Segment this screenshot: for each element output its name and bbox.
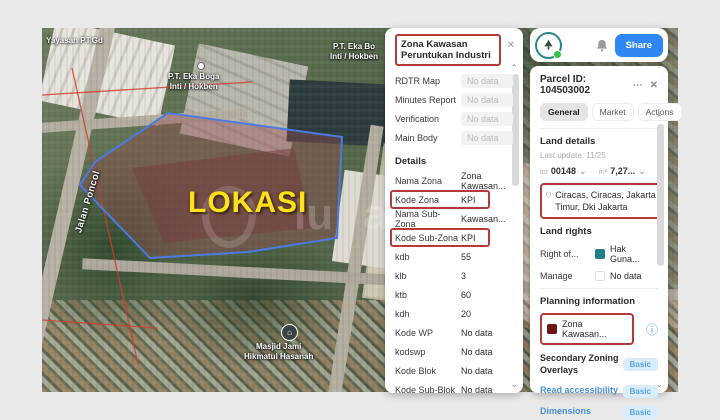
tab-general[interactable]: General [540, 103, 588, 121]
parcel-address: Ciracas, Ciracas, Jakarta Timur, Dki Jak… [555, 189, 658, 213]
info-icon[interactable]: ⓘ [646, 321, 658, 338]
online-status-dot [553, 50, 562, 59]
lokasi-annotation: LOKASI [188, 186, 307, 220]
map-label-hokben-2: P.T. Eka Bo Inti / Hokben [330, 42, 378, 62]
boundary-line [42, 320, 157, 328]
field-value: Kawasan... [461, 214, 506, 224]
field-value: No data [461, 93, 513, 107]
field-label: ktb [395, 290, 461, 300]
mosque-icon: ⌂ [287, 328, 292, 337]
parcel-panel-header: Parcel ID: 104503002 ⋯ ✕ [540, 74, 658, 96]
lot-dropdown[interactable]: lot 00148 ⌄ [540, 166, 587, 176]
zoning-value: Zona Kawasan... [562, 319, 627, 339]
field-label: kodswp [395, 347, 461, 357]
watermark-text: lu a [294, 190, 388, 240]
map-label-line: Inti / Hokben [170, 82, 218, 91]
close-icon[interactable]: ✕ [650, 80, 658, 91]
field-row: Main Body No data [395, 128, 501, 147]
overlay-row: Dimensions Basic [540, 406, 658, 419]
basic-badge[interactable]: Basic [623, 385, 658, 398]
planning-information-header: Planning information [540, 296, 658, 307]
tab-market[interactable]: Market [592, 103, 634, 121]
poi-marker[interactable] [197, 62, 205, 70]
field-row: RDTR Map No data [395, 71, 501, 90]
field-row: Verification No data [395, 109, 501, 128]
field-row-highlighted: Kode Zona KPI [395, 190, 501, 209]
field-row: Nama Zona Zona Kawasan... [395, 171, 501, 190]
field-value: 20 [461, 309, 471, 319]
field-row: Nama Sub-Zona Kawasan... [395, 209, 501, 228]
parcel-panel: Parcel ID: 104503002 ⋯ ✕ General Market … [530, 66, 668, 393]
read-accessibility-link[interactable]: Read accessibility [540, 385, 623, 397]
map-label-yayasan: Yayasan PT.Gd [46, 36, 103, 46]
field-value: KPI [461, 195, 476, 205]
overlay-row: Secondary Zoning Overlays Basic [540, 353, 658, 376]
chevron-down-icon[interactable]: ⌄ [510, 380, 518, 389]
field-value: 60 [461, 290, 471, 300]
zoning-highlight-box: Zona Kawasan... [540, 313, 634, 345]
field-label: Minutes Report [395, 95, 461, 105]
field-row: Kode Sub-Blok No data [395, 380, 501, 399]
field-row: Kode Blok No data [395, 361, 501, 380]
field-label: Nama Sub-Zona [395, 209, 461, 229]
chevron-down-icon[interactable]: ⌄ [655, 380, 663, 389]
lot-prefix: lot [540, 167, 548, 176]
field-label: RDTR Map [395, 76, 461, 86]
zoning-details-panel: Zona Kawasan Peruntukan Industri ✕ ⌃ ⌄ R… [385, 28, 523, 393]
field-row: Minutes Report No data [395, 90, 501, 109]
zoning-color-swatch [547, 324, 557, 334]
details-section-header: Details [395, 156, 501, 167]
divider [540, 288, 658, 289]
close-icon[interactable]: ✕ [507, 40, 515, 51]
overlay-row: Read accessibility Basic [540, 385, 658, 398]
field-value: No data [461, 112, 513, 126]
field-label: Kode Blok [395, 366, 461, 376]
chevron-up-icon[interactable]: ⌃ [655, 114, 663, 123]
divider [540, 128, 658, 129]
field-row: ktb 60 [395, 285, 501, 304]
share-button[interactable]: Share [615, 34, 663, 57]
map-label-line: P.T. Eka Boga [168, 72, 219, 81]
scrollbar-thumb[interactable] [657, 124, 664, 266]
map-label-line: Hikmatul Hasanah [244, 352, 313, 361]
field-row: kdb 55 [395, 247, 501, 266]
field-label: Kode WP [395, 328, 461, 338]
dimensions-link[interactable]: Dimensions [540, 406, 623, 418]
shield-icon [546, 189, 551, 200]
field-value: 55 [461, 252, 471, 262]
field-value: No data [461, 366, 493, 376]
field-label: kdh [395, 309, 461, 319]
field-value: No data [461, 328, 493, 338]
field-row: klb 3 [395, 266, 501, 285]
map-label-line: Inti / Hokben [330, 52, 378, 61]
address-highlight-box: Ciracas, Ciracas, Jakarta Timur, Dki Jak… [540, 183, 664, 219]
avatar[interactable] [535, 32, 562, 59]
map-label-hokben-1: P.T. Eka Boga Inti / Hokben [168, 72, 219, 92]
field-value: Zona Kawasan... [461, 171, 506, 191]
area-dropdown[interactable]: m² 7,27... ⌄ [599, 166, 646, 176]
area-value: 7,27... [610, 166, 635, 176]
field-row: kodswp No data [395, 342, 501, 361]
right-of-row: Right of... Hak Guna... [540, 244, 658, 264]
empty-color-swatch [595, 271, 605, 281]
field-label: Kode Sub-Blok [395, 385, 461, 395]
field-label: Main Body [395, 133, 461, 143]
field-value: No data [461, 347, 493, 357]
lot-value: 00148 [551, 166, 576, 176]
boundary-line [42, 82, 252, 95]
teal-color-swatch [595, 249, 605, 259]
notification-bell-icon[interactable] [596, 39, 608, 52]
tree-icon [542, 39, 555, 52]
land-details-header: Land details [540, 136, 658, 147]
manage-value: No data [610, 271, 642, 281]
field-value: No data [461, 131, 513, 145]
field-value: No data [461, 74, 513, 88]
field-label: Nama Zona [395, 176, 461, 186]
parcel-tabs: General Market Actions [540, 103, 658, 121]
field-value: KPI [461, 233, 476, 243]
field-label: Kode Sub-Zona [395, 233, 461, 243]
field-row-highlighted: Kode Sub-Zona KPI [395, 228, 501, 247]
map-label-line: P.T. Eka Bo [333, 42, 375, 51]
right-of-label: Right of... [540, 249, 595, 259]
chevron-down-icon: ⌄ [579, 167, 587, 176]
area-prefix: m² [599, 167, 608, 176]
scrollbar-thumb[interactable] [512, 74, 519, 186]
chevron-up-icon[interactable]: ⌃ [510, 64, 518, 73]
top-toolbar: Share [530, 28, 668, 62]
map-label-line: Masjid Jami [256, 342, 301, 351]
secondary-zoning-overlays-label: Secondary Zoning Overlays [540, 353, 623, 376]
field-value: 3 [461, 271, 466, 281]
mosque-poi-marker[interactable]: ⌂ [281, 324, 298, 341]
field-value: No data [461, 385, 493, 395]
basic-badge[interactable]: Basic [623, 358, 658, 371]
screenshot-canvas: Yayasan PT.Gd P.T. Eka Boga Inti / Hokbe… [0, 0, 720, 420]
manage-row: Manage No data [540, 271, 658, 281]
field-label: klb [395, 271, 461, 281]
zoning-panel-title: Zona Kawasan Peruntukan Industri [395, 34, 501, 66]
field-row: kdh 20 [395, 304, 501, 323]
field-label: Kode Zona [395, 195, 461, 205]
parcel-selectors: lot 00148 ⌄ m² 7,27... ⌄ [540, 166, 658, 176]
manage-label: Manage [540, 271, 595, 281]
right-of-value: Hak Guna... [610, 244, 658, 264]
more-options-icon[interactable]: ⋯ [633, 80, 643, 91]
field-row: Kode WP No data [395, 323, 501, 342]
basic-badge[interactable]: Basic [623, 406, 658, 419]
map-label-mosque: Masjid Jami Hikmatul Hasanah [244, 342, 313, 362]
field-label: Verification [395, 114, 461, 124]
zoning-row: Zona Kawasan... ⓘ [540, 313, 658, 345]
land-rights-header: Land rights [540, 226, 658, 237]
last-update-text: Last update: 11/25 [540, 151, 658, 160]
parcel-id-title: Parcel ID: 104503002 [540, 74, 633, 96]
chevron-down-icon: ⌄ [638, 167, 646, 176]
field-label: kdb [395, 252, 461, 262]
